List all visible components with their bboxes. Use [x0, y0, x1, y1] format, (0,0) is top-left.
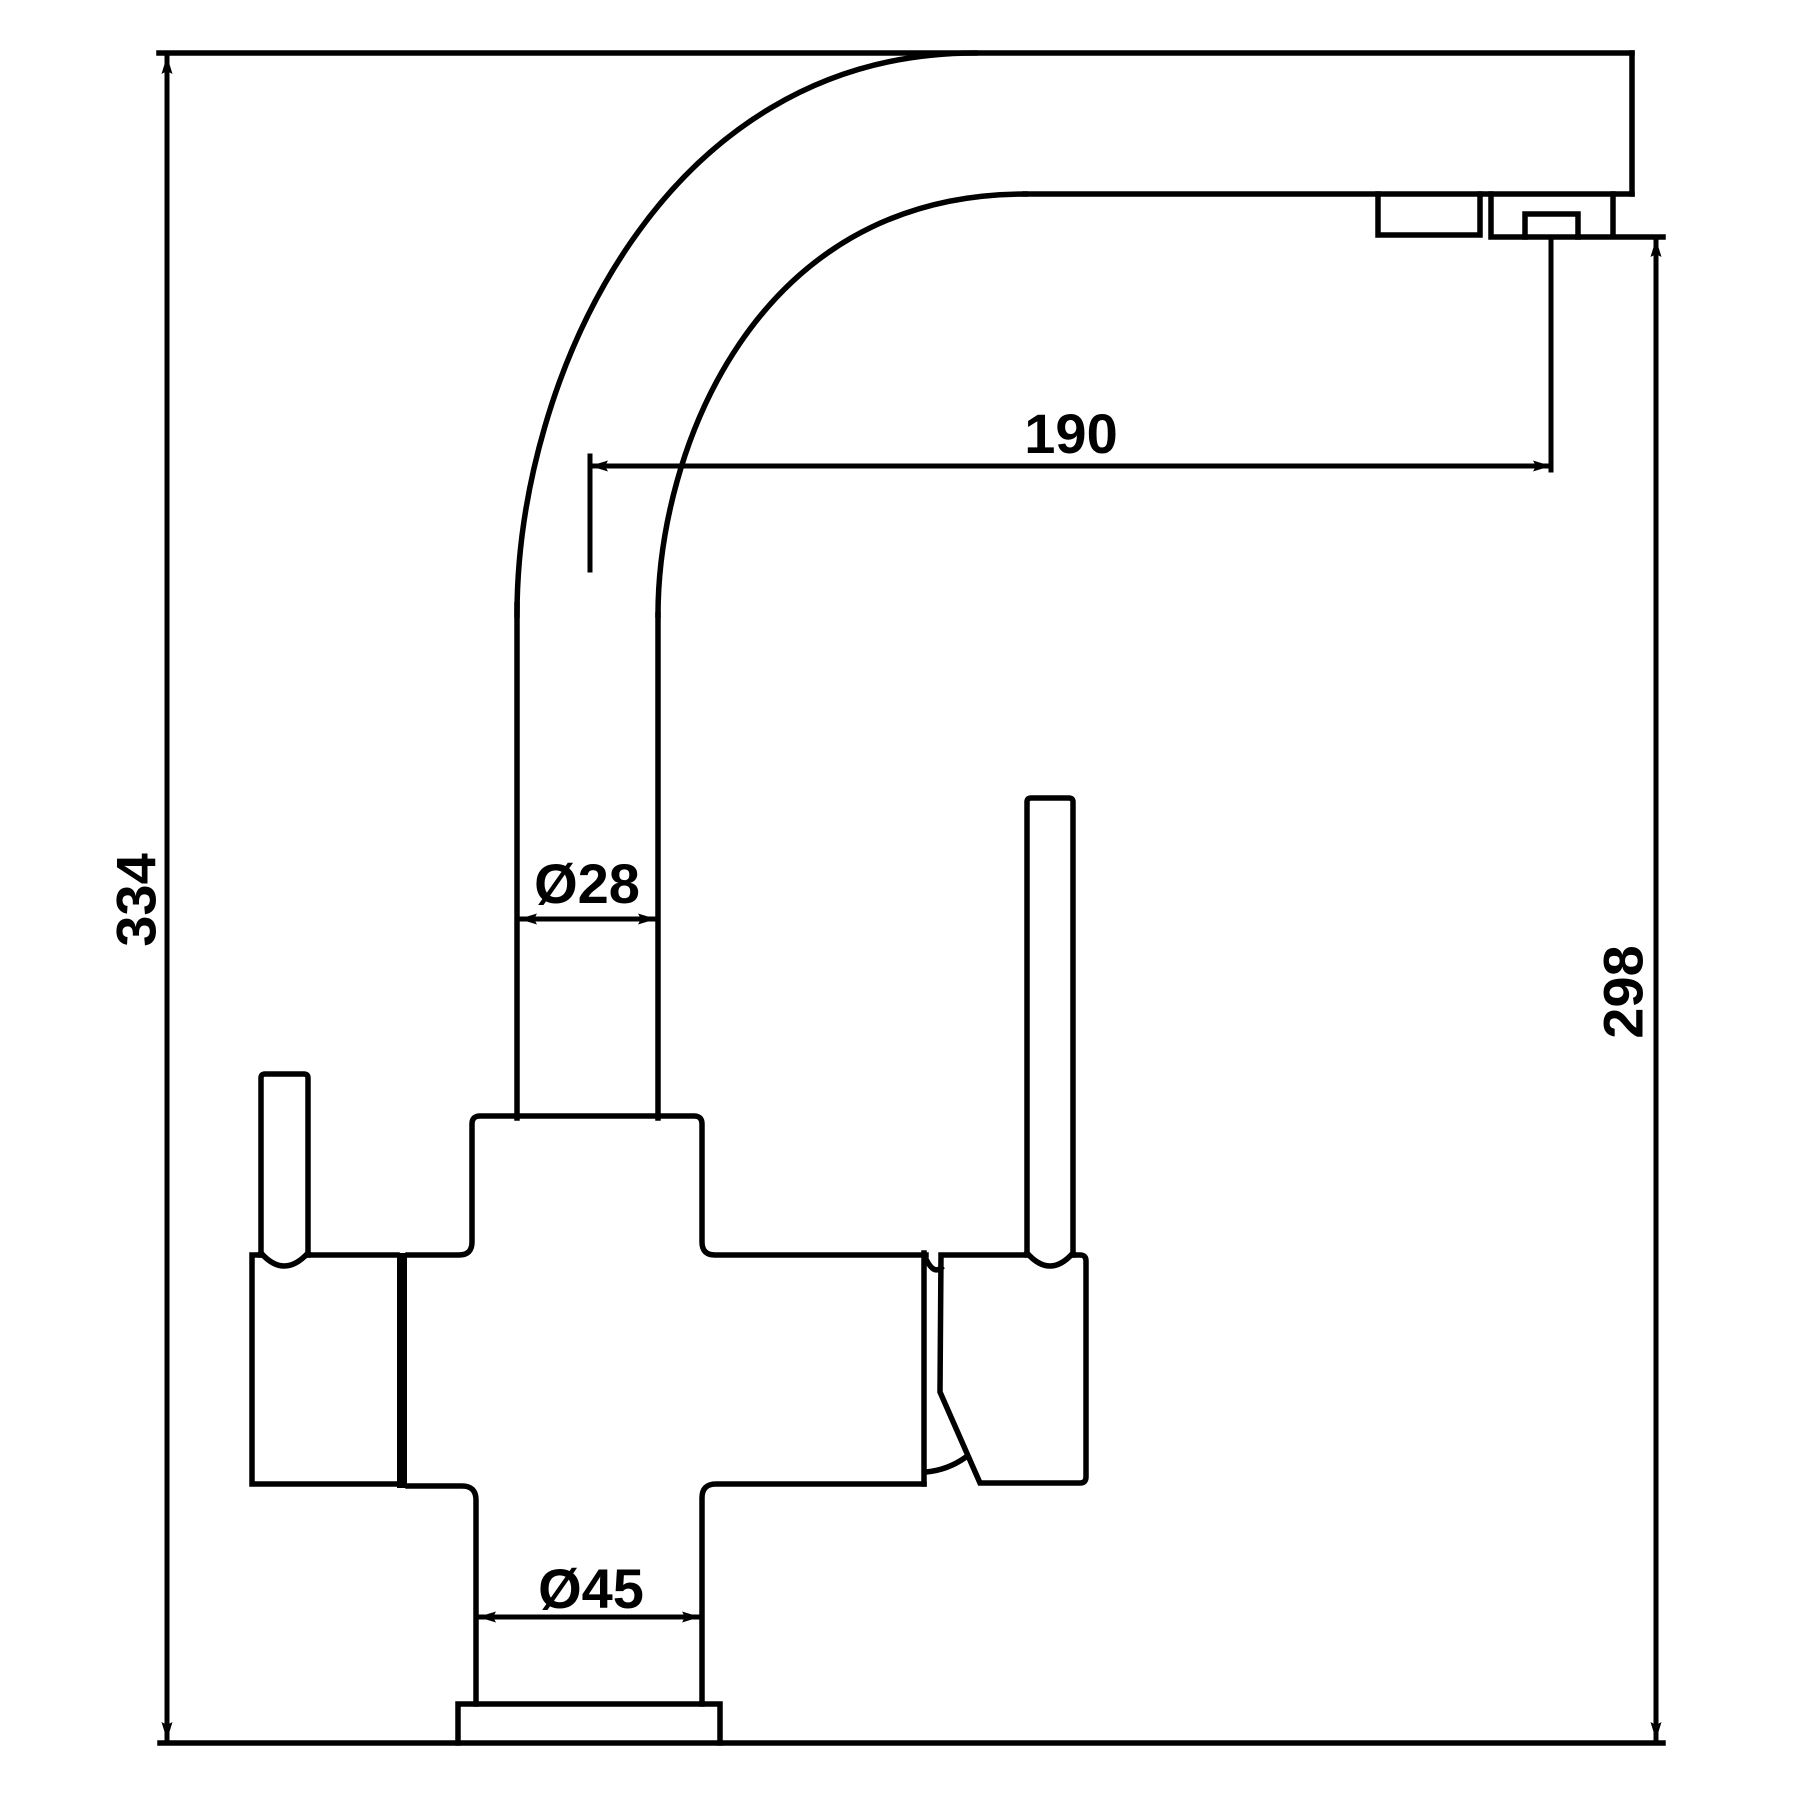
svg-text:190: 190	[1024, 402, 1117, 465]
svg-text:Ø45: Ø45	[538, 1557, 644, 1620]
svg-text:334: 334	[105, 853, 168, 946]
svg-text:298: 298	[1592, 945, 1655, 1038]
svg-text:Ø28: Ø28	[534, 852, 640, 915]
